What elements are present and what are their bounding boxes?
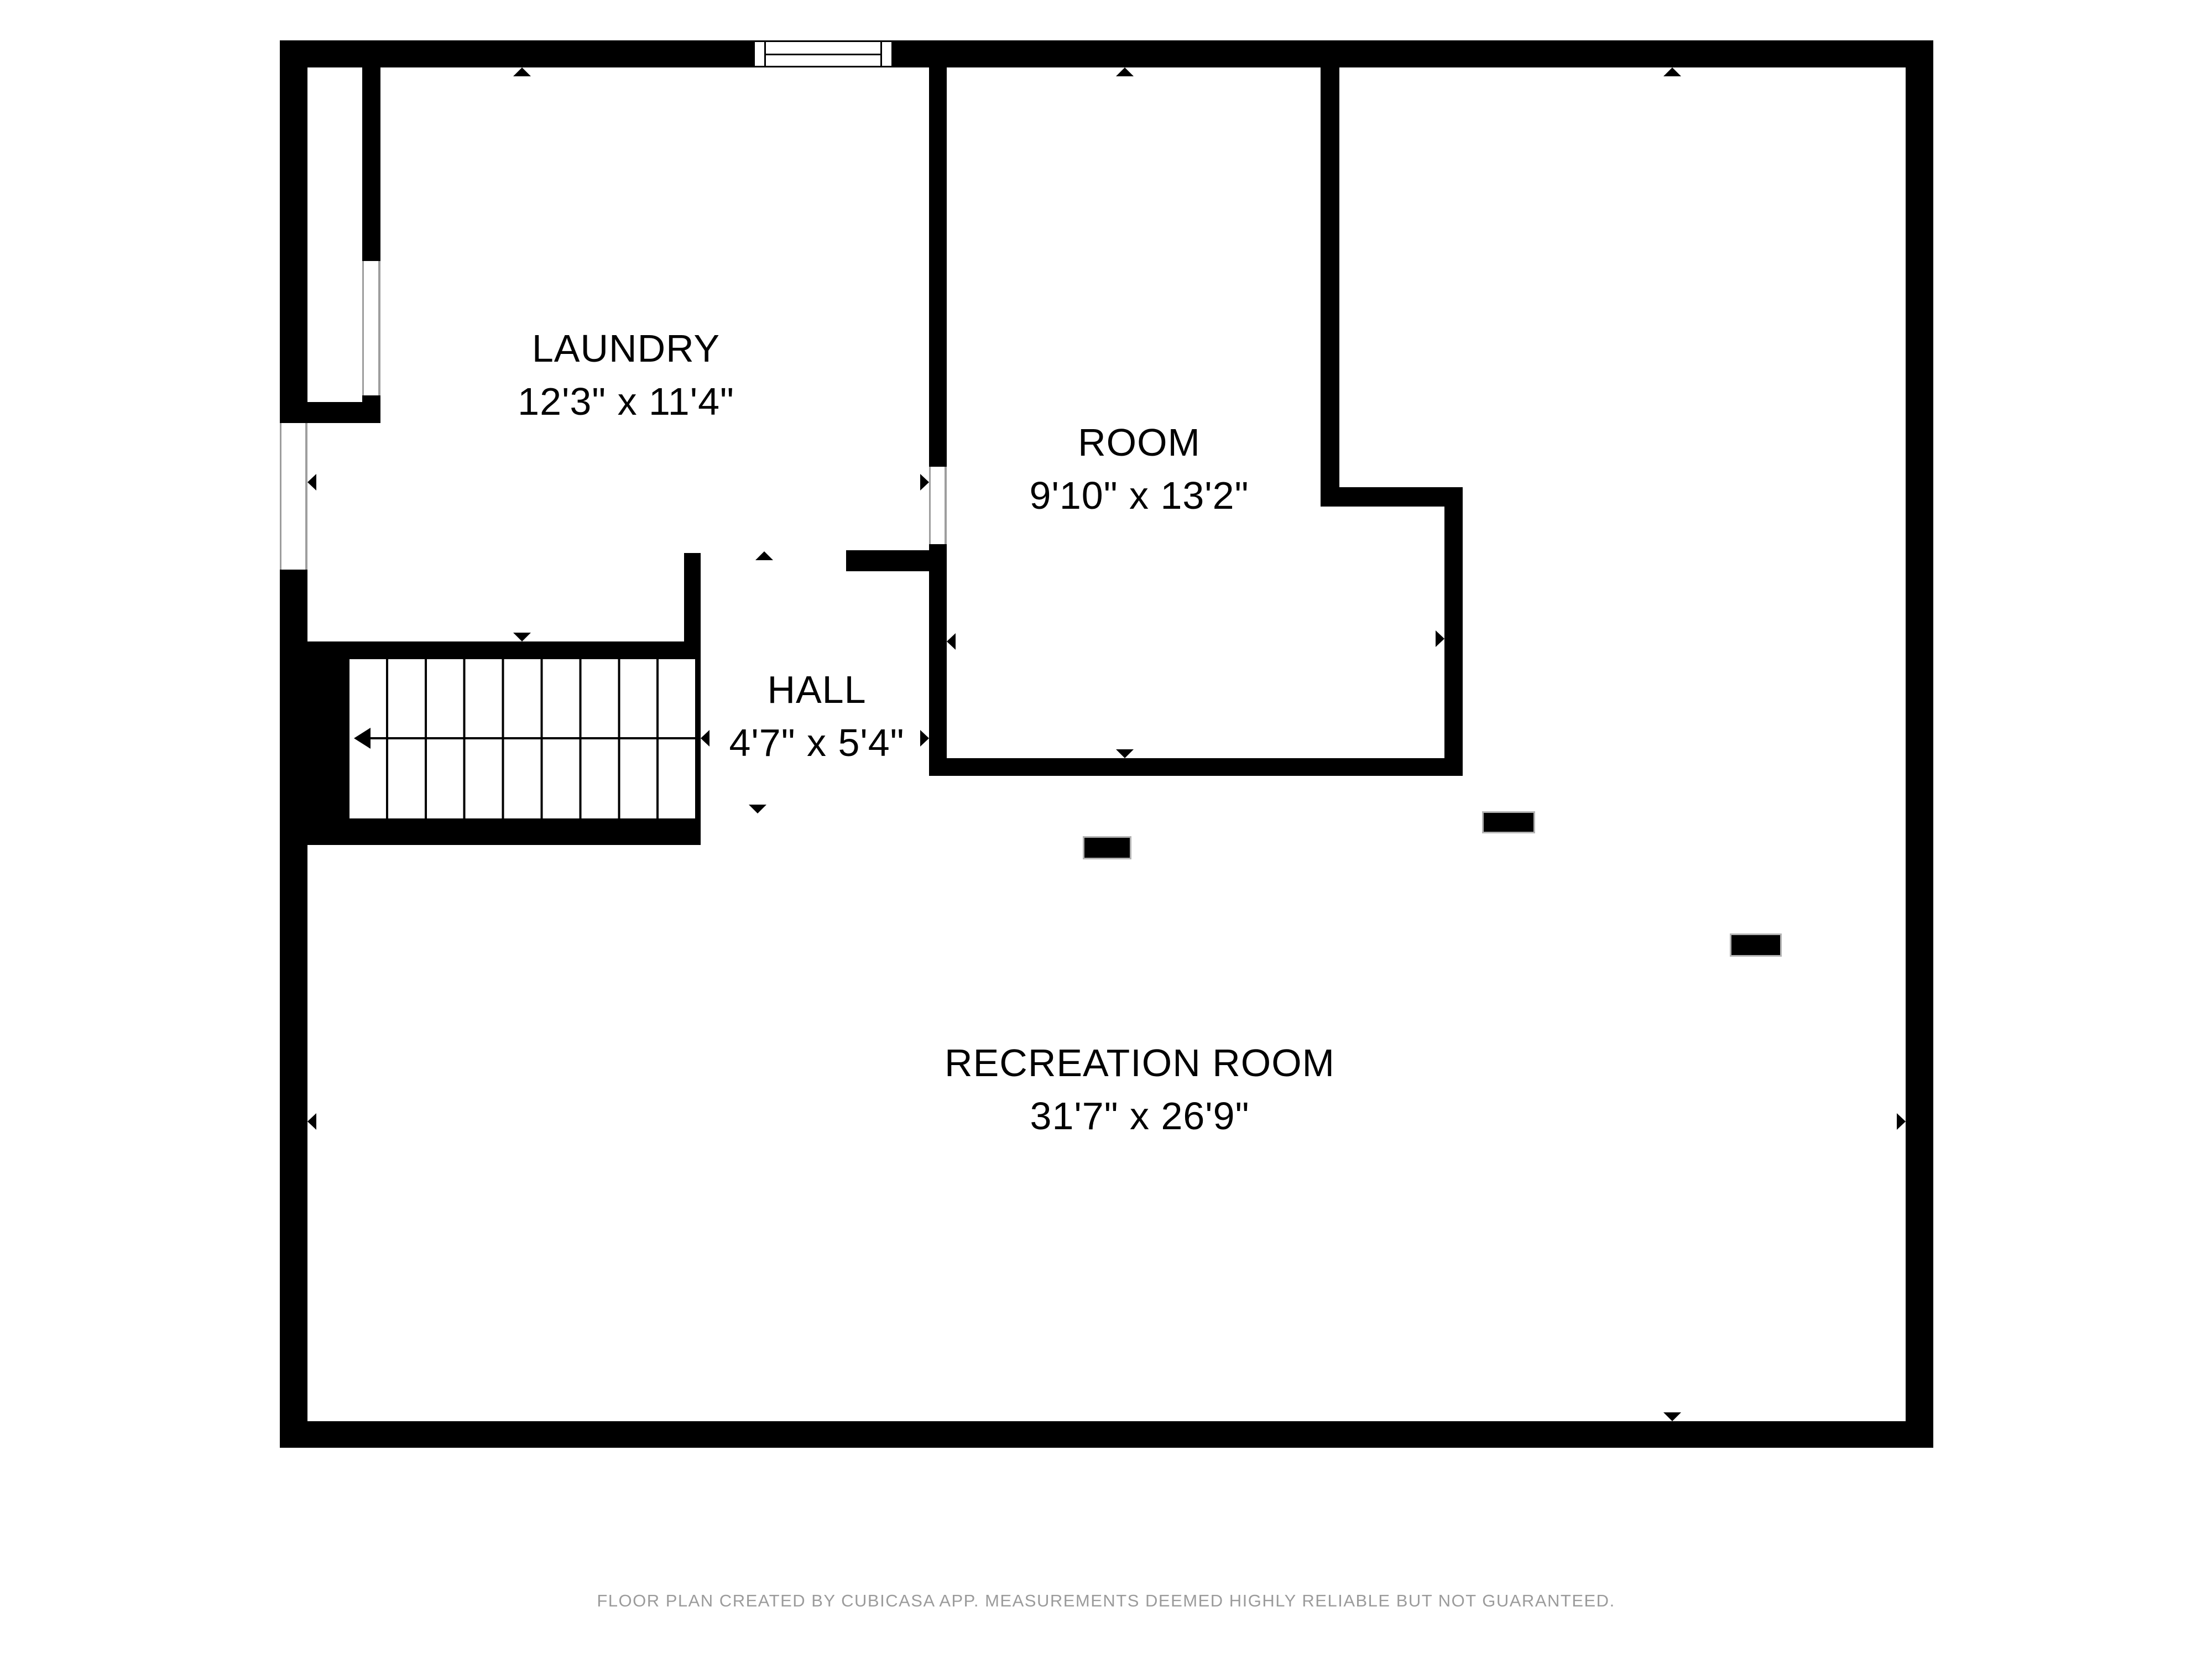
wall-hall-top-stub: [846, 550, 929, 571]
wall-stub-left: [1083, 836, 1131, 859]
stairs-direction-line: [357, 737, 697, 739]
wall-exterior-left-upper: [280, 40, 307, 423]
marker-right-laundry-icon: [920, 474, 929, 491]
wall-room-right-upper: [1321, 67, 1339, 507]
closet-opening-jamb-left: [362, 261, 364, 395]
wall-laundry-room-lower: [929, 544, 947, 776]
wall-room-jog: [1321, 487, 1463, 507]
left-door-jamb-outer: [280, 423, 281, 570]
wall-stairs-bottom: [307, 818, 701, 845]
wall-exterior-left-lower: [280, 570, 307, 1448]
marker-left-room-icon: [947, 633, 956, 650]
wall-closet-bottom: [307, 402, 380, 423]
marker-right-recreation-icon: [1897, 1113, 1906, 1130]
wall-stub-middle: [1482, 811, 1535, 833]
wall-room-right-lower: [1444, 487, 1463, 776]
room-dimensions-recreation: 31'7" x 26'9": [945, 1089, 1335, 1142]
window-jamb-right: [880, 42, 882, 66]
wall-room-bottom: [947, 758, 1463, 776]
wall-exterior-top: [280, 40, 1933, 67]
window-icon: [753, 40, 893, 67]
wall-exterior-right: [1906, 40, 1933, 1448]
marker-left-laundry-icon: [307, 474, 316, 491]
window-center-line: [766, 54, 880, 55]
room-door-jamb-left: [929, 467, 931, 544]
marker-down-recreation-icon: [1663, 1412, 1681, 1421]
left-door-jamb-inner: [305, 423, 307, 570]
stairs-direction-arrow-icon: [354, 728, 371, 749]
marker-down-hall-icon: [749, 805, 766, 813]
room-name-laundry: LAUNDRY: [518, 322, 734, 375]
room-door-jamb-right: [945, 467, 947, 544]
marker-left-recreation-icon: [307, 1113, 316, 1130]
marker-up-hall-icon: [755, 551, 773, 560]
room-label-laundry: LAUNDRY 12'3" x 11'4": [518, 322, 734, 428]
marker-right-room-icon: [1436, 630, 1444, 647]
room-label-hall: HALL 4'7" x 5'4": [729, 663, 904, 769]
wall-laundry-room-upper: [929, 67, 947, 467]
marker-up-laundry-icon: [513, 67, 531, 76]
wall-stub-right: [1730, 933, 1782, 957]
room-label-recreation: RECREATION ROOM 31'7" x 26'9": [945, 1036, 1335, 1142]
marker-left-hall-icon: [701, 730, 709, 747]
marker-up-recreation-icon: [1663, 67, 1681, 76]
room-name-recreation: RECREATION ROOM: [945, 1036, 1335, 1089]
room-dimensions-laundry: 12'3" x 11'4": [518, 375, 734, 428]
floor-plan-page: LAUNDRY 12'3" x 11'4" ROOM 9'10" x 13'2"…: [0, 0, 2212, 1659]
stairs-landing-block: [307, 659, 349, 818]
room-label-room: ROOM 9'10" x 13'2": [1030, 416, 1249, 522]
closet-opening-jamb-right: [378, 261, 380, 395]
marker-right-hall-icon: [920, 730, 929, 747]
wall-closet-right-upper: [362, 67, 380, 261]
wall-exterior-bottom: [280, 1421, 1933, 1448]
wall-stairs-top: [307, 641, 701, 659]
room-dimensions-room: 9'10" x 13'2": [1030, 469, 1249, 522]
room-name-room: ROOM: [1030, 416, 1249, 469]
room-name-hall: HALL: [729, 663, 904, 716]
marker-down-room-icon: [1116, 749, 1134, 758]
room-dimensions-hall: 4'7" x 5'4": [729, 716, 904, 769]
footer-disclaimer: FLOOR PLAN CREATED BY CUBICASA APP. MEAS…: [0, 1590, 2212, 1611]
marker-down-laundry-icon: [513, 633, 531, 641]
marker-up-room-icon: [1116, 67, 1134, 76]
